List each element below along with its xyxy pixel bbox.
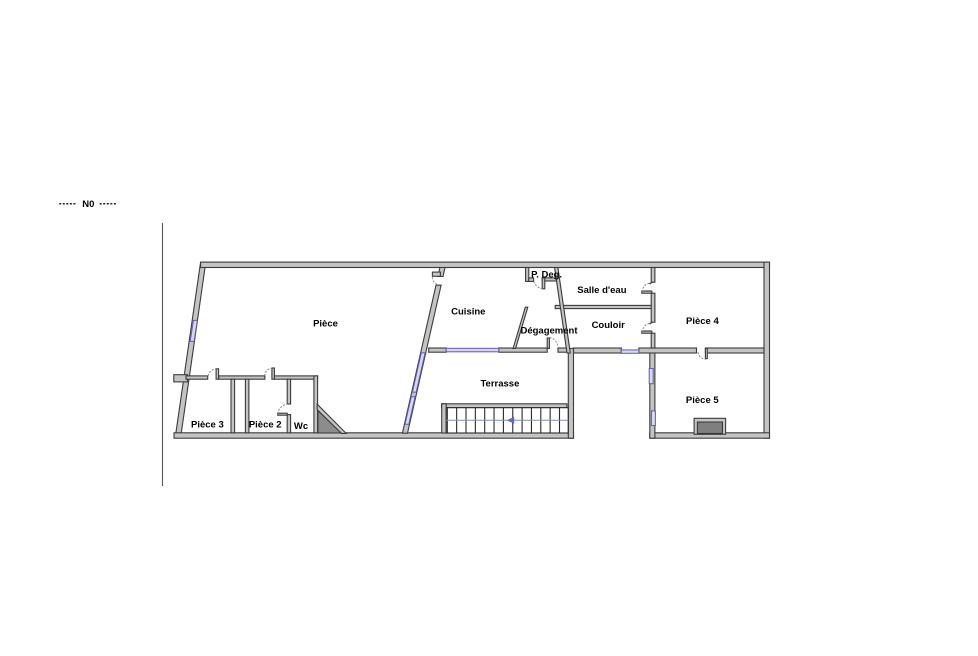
svg-text:Pièce: Pièce [313,319,338,330]
svg-text:Cuisine: Cuisine [451,306,485,317]
svg-text:P. Deg.: P. Deg. [531,270,562,281]
svg-text:Dégagement: Dégagement [520,325,578,336]
svg-text:Pièce 2: Pièce 2 [249,419,282,430]
svg-text:Pièce 3: Pièce 3 [191,419,224,430]
svg-text:Pièce 4: Pièce 4 [686,316,719,327]
svg-text:Wc: Wc [294,421,308,432]
svg-text:Couloir: Couloir [592,320,626,331]
svg-text:Salle d'eau: Salle d'eau [577,285,626,296]
svg-text:N0: N0 [82,199,94,210]
svg-text:Pièce 5: Pièce 5 [686,395,719,406]
svg-text:Terrasse: Terrasse [480,378,519,389]
